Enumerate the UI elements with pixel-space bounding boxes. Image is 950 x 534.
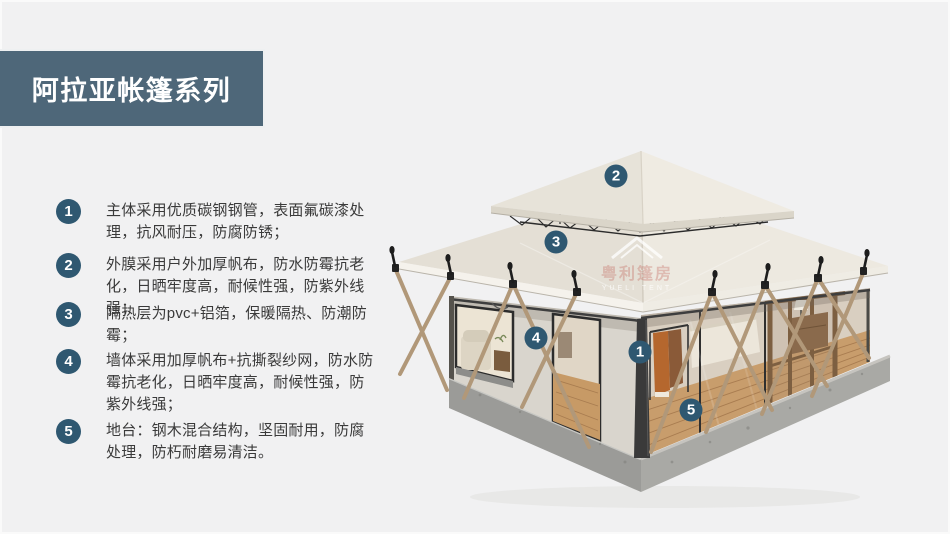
image-marker: 5: [680, 399, 703, 422]
image-marker: 3: [545, 231, 568, 254]
interior-furniture: [558, 332, 572, 358]
left-edge-post: [449, 296, 454, 380]
slide: 阿拉亚帐篷系列 1 主体采用优质碳钢钢管，表面氟碳漆处理，抗风耐压，防腐防锈； …: [0, 0, 950, 534]
image-marker: 1: [629, 341, 652, 364]
ground-shadow: [470, 486, 860, 508]
image-marker: 4: [525, 327, 548, 350]
side-table: [494, 350, 510, 372]
image-marker: 2: [605, 165, 628, 188]
tent-illustration: [0, 0, 950, 534]
